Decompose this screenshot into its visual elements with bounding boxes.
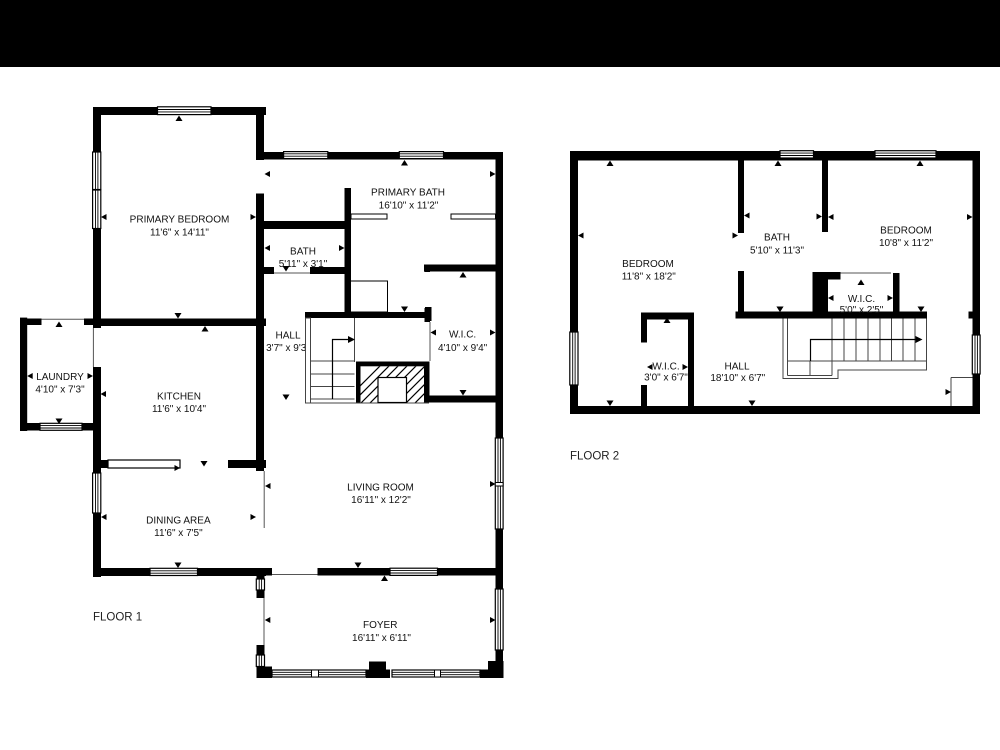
svg-text:10'8" x 11'2": 10'8" x 11'2"	[879, 238, 934, 249]
svg-text:W.I.C.: W.I.C.	[652, 362, 679, 373]
svg-text:11'6" x 14'11": 11'6" x 14'11"	[150, 228, 209, 239]
svg-text:KITCHEN: KITCHEN	[157, 392, 201, 403]
svg-text:3'7" x 9'3": 3'7" x 9'3"	[266, 343, 310, 354]
svg-text:BEDROOM: BEDROOM	[622, 259, 674, 270]
svg-text:4'10" x 7'3": 4'10" x 7'3"	[35, 385, 85, 396]
svg-text:DINING AREA: DINING AREA	[146, 516, 211, 527]
svg-text:FOYER: FOYER	[363, 620, 397, 631]
svg-text:FLOOR 1: FLOOR 1	[93, 612, 142, 624]
svg-text:W.I.C.: W.I.C.	[449, 330, 476, 341]
svg-text:W.I.C.: W.I.C.	[848, 294, 875, 305]
svg-text:FLOOR 2: FLOOR 2	[570, 451, 619, 463]
svg-text:11'6" x 10'4": 11'6" x 10'4"	[152, 404, 207, 415]
svg-text:4'10" x 9'4": 4'10" x 9'4"	[438, 343, 488, 354]
svg-text:PRIMARY BATH: PRIMARY BATH	[371, 188, 445, 199]
svg-text:5'0" x 2'5": 5'0" x 2'5"	[840, 305, 884, 316]
svg-text:HALL: HALL	[275, 331, 300, 342]
svg-text:LIVING ROOM: LIVING ROOM	[347, 483, 414, 494]
svg-text:5'10" x 11'3": 5'10" x 11'3"	[750, 246, 805, 257]
svg-text:11'8" x 18'2": 11'8" x 18'2"	[622, 272, 677, 283]
svg-text:BATH: BATH	[290, 247, 316, 258]
svg-text:LAUNDRY: LAUNDRY	[36, 372, 84, 383]
svg-text:BEDROOM: BEDROOM	[880, 226, 932, 237]
svg-text:PRIMARY BEDROOM: PRIMARY BEDROOM	[130, 215, 230, 226]
svg-text:HALL: HALL	[724, 362, 749, 373]
svg-text:BATH: BATH	[764, 233, 790, 244]
svg-text:18'10" x 6'7": 18'10" x 6'7"	[710, 373, 765, 384]
svg-text:16'11" x 6'11": 16'11" x 6'11"	[352, 633, 411, 644]
svg-text:16'11" x 12'2": 16'11" x 12'2"	[351, 495, 411, 506]
svg-text:11'6" x 7'5": 11'6" x 7'5"	[154, 528, 203, 539]
svg-text:3'0" x 6'7": 3'0" x 6'7"	[644, 373, 688, 384]
svg-text:16'10" x 11'2": 16'10" x 11'2"	[379, 201, 439, 212]
